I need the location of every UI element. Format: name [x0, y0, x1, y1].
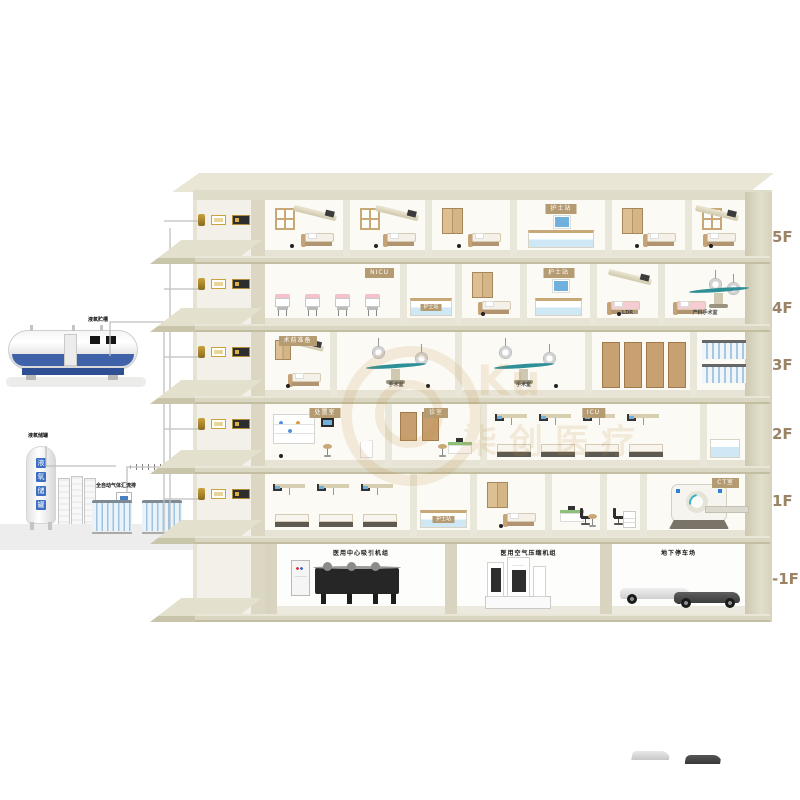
room-doctor-office	[545, 474, 600, 536]
room-operating-room-2: 手术室	[455, 332, 585, 396]
room-consulting-room: 诊室	[385, 404, 480, 466]
room-tag: 手术室	[388, 381, 403, 388]
floor-label-1F: 1F	[772, 492, 800, 510]
room-sign: NICU	[365, 268, 394, 278]
lox-tank-label: 液氧贮槽	[88, 316, 108, 323]
floor-label-3F: 3F	[772, 356, 800, 374]
gas-valve-alarm-panels-5F	[198, 212, 254, 228]
floor-slab-2F	[195, 466, 770, 474]
room-tag: LDR	[622, 310, 633, 316]
room-ward-502	[343, 200, 425, 256]
room-ward-501	[265, 200, 343, 256]
room-sign: 诊室	[424, 408, 448, 418]
floor-label-4F: 4F	[772, 299, 800, 317]
floor-slab-5F	[195, 256, 770, 264]
counter-front-label: 护士站	[420, 304, 441, 311]
room-ward-504	[605, 200, 685, 256]
room-ldr-room: LDR	[590, 264, 658, 324]
room-sign: CT室	[712, 478, 739, 488]
room-ward-101	[470, 474, 545, 536]
room-sign: 护士站	[543, 268, 574, 278]
room-label: 医用中心吸引机组	[277, 548, 445, 557]
manifold-label: 全自动气体汇流排	[96, 482, 136, 489]
room-ward-505	[685, 200, 745, 256]
room-sign: 处置室	[309, 408, 340, 418]
floor-label-5F: 5F	[772, 228, 800, 246]
room-label: 医用空气压缩机组	[457, 548, 600, 557]
room-pre-op-room: 术前准备	[265, 332, 330, 396]
room-reception-counter-4f: 护士站	[400, 264, 455, 324]
room-treatment-room: 处置室	[265, 404, 385, 466]
floor-slab-1F	[195, 536, 770, 544]
floor-slab--1F	[195, 614, 770, 622]
gas-valve-alarm-panels-1F	[198, 486, 254, 502]
room-inpatient-ward-1f	[265, 474, 410, 536]
room-tag: 手术室	[516, 381, 531, 388]
room-icu-counter	[700, 404, 745, 466]
floor-slab-3F	[195, 396, 770, 404]
room-vacuum-pump-station: 医用中心吸引机组	[265, 544, 445, 614]
room-ct-room: CT室	[640, 474, 745, 536]
room-tag: 产科手术室	[692, 309, 717, 316]
room-air-compressor-station: 医用空气压缩机组	[445, 544, 600, 614]
backup-tank-label: 液氧储罐	[28, 432, 48, 439]
room-icu-ward: ICU	[480, 404, 700, 466]
room-gas-cylinder-room	[690, 332, 745, 396]
room-ward-503	[425, 200, 510, 256]
diagram-canvas: 液氧贮槽 液氧储罐 液氧储罐 全自动气体汇流排 Ku 柒创医疗 护士站NICU护…	[0, 0, 800, 800]
counter-front-label: 护士站	[433, 516, 454, 523]
floor-label--1F: -1F	[772, 570, 800, 588]
room-nicu-ward: NICU	[265, 264, 400, 324]
room-ward-401	[455, 264, 520, 324]
room-sign: 术前准备	[278, 336, 316, 346]
room-sign: 护士站	[545, 204, 576, 214]
room-instrument-storage	[585, 332, 690, 396]
floor-slab-4F	[195, 324, 770, 332]
gas-valve-alarm-panels-4F	[198, 276, 254, 292]
gas-valve-alarm-panels-3F	[198, 344, 254, 360]
room-reception-counter-1f: 护士站	[410, 474, 470, 536]
room-label: 地下停车场	[612, 548, 745, 557]
floor-label-2F: 2F	[772, 425, 800, 443]
gas-valve-alarm-panels-2F	[198, 416, 254, 432]
room-underground-parking: 地下停车场	[600, 544, 745, 614]
room-nurse-station-5f: 护士站	[510, 200, 605, 256]
room-sign: ICU	[582, 408, 605, 418]
room-operating-room-1: 手术室	[330, 332, 455, 396]
room-nurse-station-4f: 护士站	[520, 264, 590, 324]
room-ct-control-room	[600, 474, 640, 536]
room-obstetric-operating-room: 产科手术室	[658, 264, 745, 324]
